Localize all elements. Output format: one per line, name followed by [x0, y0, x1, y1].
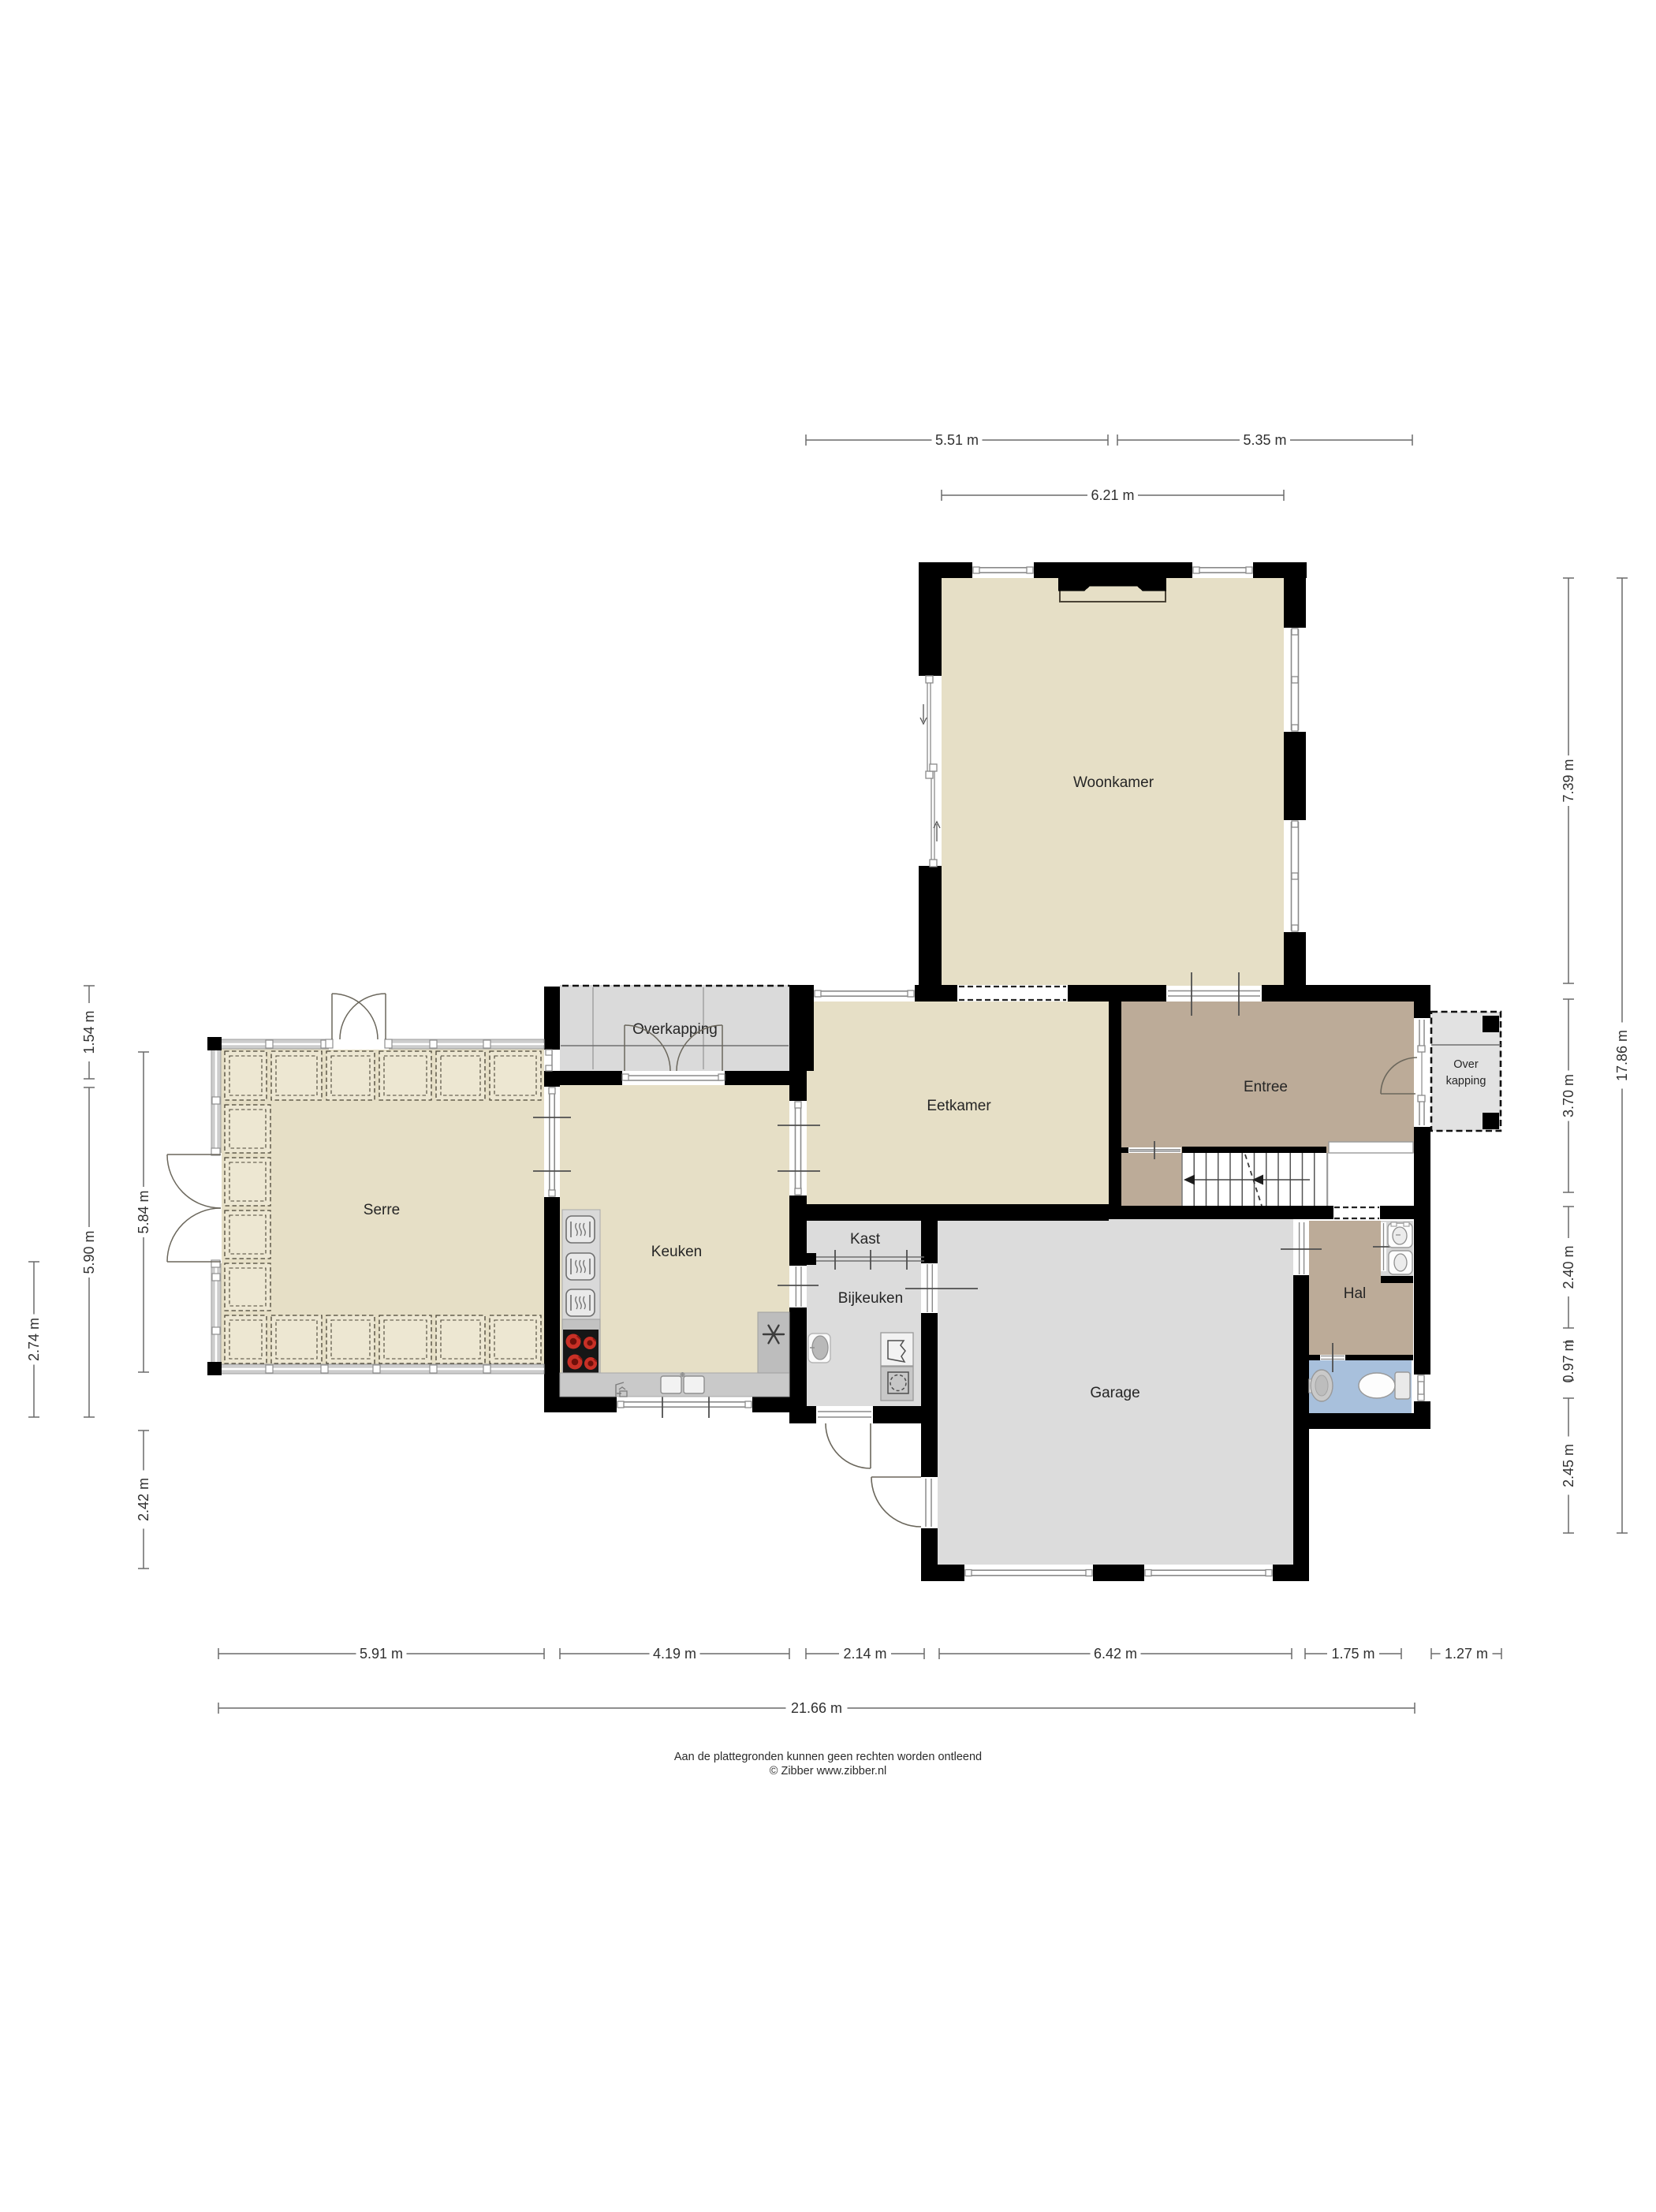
svg-text:Hal: Hal	[1344, 1285, 1367, 1302]
svg-text:Bijkeuken: Bijkeuken	[838, 1290, 903, 1307]
svg-text:2.14 m: 2.14 m	[843, 1646, 886, 1662]
svg-text:Aan de plattegronden kunnen ge: Aan de plattegronden kunnen geen rechten…	[674, 1751, 982, 1763]
svg-text:© Zibber www.zibber.nl: © Zibber www.zibber.nl	[770, 1765, 887, 1777]
svg-text:2.40 m: 2.40 m	[1561, 1245, 1576, 1289]
svg-text:kapping: kapping	[1446, 1075, 1486, 1087]
svg-text:2.74 m: 2.74 m	[26, 1318, 42, 1361]
svg-text:5.90 m: 5.90 m	[81, 1230, 97, 1274]
svg-text:6.42 m: 6.42 m	[1094, 1646, 1137, 1662]
svg-text:4.19 m: 4.19 m	[653, 1646, 696, 1662]
svg-text:0.97 m: 0.97 m	[1561, 1339, 1576, 1382]
svg-text:5.51 m: 5.51 m	[935, 432, 979, 448]
svg-text:Garage: Garage	[1090, 1385, 1139, 1401]
svg-text:3.70 m: 3.70 m	[1561, 1074, 1576, 1117]
svg-text:6.21 m: 6.21 m	[1091, 487, 1134, 503]
svg-text:1.75 m: 1.75 m	[1331, 1646, 1374, 1662]
svg-text:Kast: Kast	[850, 1231, 881, 1248]
svg-text:Entree: Entree	[1244, 1079, 1288, 1095]
svg-text:5.35 m: 5.35 m	[1243, 432, 1286, 448]
svg-text:Serre: Serre	[364, 1202, 400, 1218]
svg-text:1.27 m: 1.27 m	[1445, 1646, 1488, 1662]
svg-text:1.54 m: 1.54 m	[81, 1010, 97, 1054]
svg-text:Eetkamer: Eetkamer	[927, 1098, 991, 1114]
svg-text:5.91 m: 5.91 m	[360, 1646, 403, 1662]
svg-text:7.39 m: 7.39 m	[1561, 759, 1576, 802]
svg-text:21.66 m: 21.66 m	[791, 1700, 842, 1716]
svg-text:17.86 m: 17.86 m	[1614, 1030, 1630, 1081]
svg-text:Keuken: Keuken	[651, 1244, 702, 1260]
svg-text:2.42 m: 2.42 m	[136, 1478, 151, 1521]
svg-text:Woonkamer: Woonkamer	[1073, 774, 1154, 791]
svg-text:2.45 m: 2.45 m	[1561, 1444, 1576, 1487]
svg-text:5.84 m: 5.84 m	[136, 1190, 151, 1233]
svg-text:Over: Over	[1453, 1058, 1479, 1071]
